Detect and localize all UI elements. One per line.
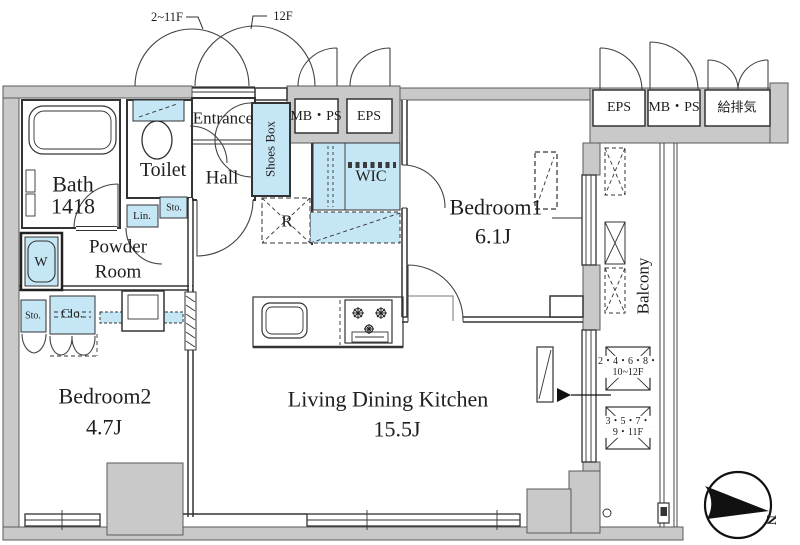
ldk-size-label: 15.5J [373, 418, 420, 443]
ac-floors-upper-label: 2・4・6・8・ 10~12F [597, 356, 659, 378]
air-supply-exhaust-label: 給排気 [717, 101, 756, 116]
rooms-linework [19, 98, 583, 517]
ac-floors-lower-line1: 3・5・7・ [605, 416, 652, 427]
leader-lines [186, 16, 267, 29]
eps-right-label: EPS [607, 100, 631, 116]
storage-bedroom2-label: Sto. [25, 310, 41, 321]
shoes-box-label: Shoes Box [264, 121, 279, 177]
mbps-left-label: MB・PS [290, 109, 341, 125]
ac-floors-lower-label: 3・5・7・ 9・11F [605, 416, 652, 438]
bedroom1-label: Bedroom1 [450, 196, 543, 221]
ac-floors-upper-line2: 10~12F [597, 367, 659, 378]
bath-size-label: 1418 [51, 195, 95, 220]
compass-icon [705, 472, 771, 538]
wic-label: WIC [355, 168, 386, 186]
ac-floors-lower-line2: 9・11F [605, 427, 652, 438]
bedroom2-size-label: 4.7J [86, 416, 122, 441]
powder-room-label-line2: Room [95, 261, 141, 282]
eps-left-label: EPS [357, 109, 381, 125]
floor-range-label-left: 2~11F [151, 10, 183, 24]
linen-label: Lin. [133, 210, 151, 222]
ac-floors-upper-line1: 2・4・6・8・ [597, 356, 659, 367]
toilet-label: Toilet [140, 159, 186, 181]
floor-plan: 2~11F 12F Entrance Shoes Box Toilet Bath… [0, 0, 800, 545]
powder-room-label-line1: Powder [89, 236, 147, 257]
north-label: N [762, 515, 778, 525]
balcony-linework [603, 143, 677, 527]
closet-label: Clo. [61, 307, 83, 322]
bedroom2-label: Bedroom2 [59, 385, 152, 410]
fridge-label: R [281, 211, 292, 230]
balcony-label: Balcony [633, 258, 652, 315]
entrance-label: Entrance [193, 108, 253, 127]
ldk-label: Living Dining Kitchen [288, 388, 488, 413]
storage-hall-label: Sto. [166, 202, 182, 213]
hall-label: Hall [206, 167, 239, 188]
washer-label: W [34, 255, 47, 271]
mbps-right-label: MB・PS [648, 100, 699, 116]
bedroom1-size-label: 6.1J [475, 225, 511, 250]
floor-range-label-right: 12F [273, 9, 292, 23]
